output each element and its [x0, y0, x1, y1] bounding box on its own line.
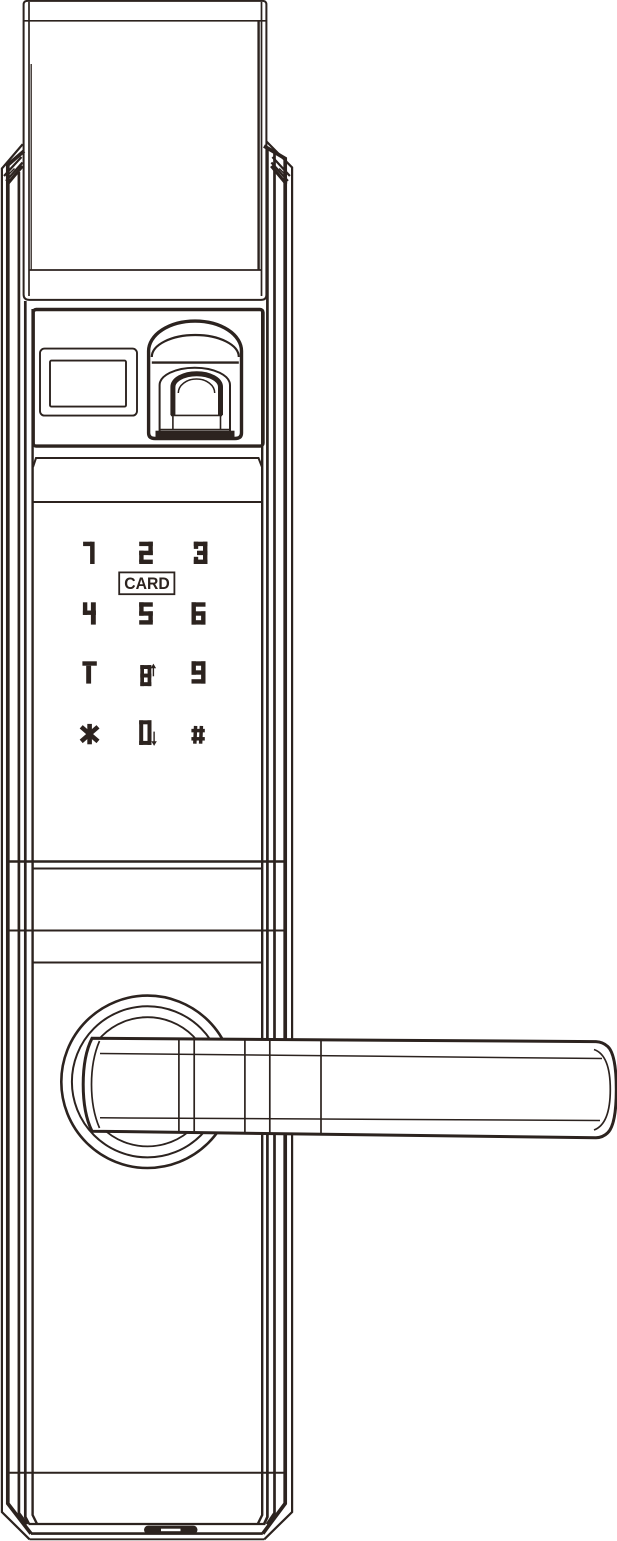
svg-text:CARD: CARD	[124, 574, 169, 593]
